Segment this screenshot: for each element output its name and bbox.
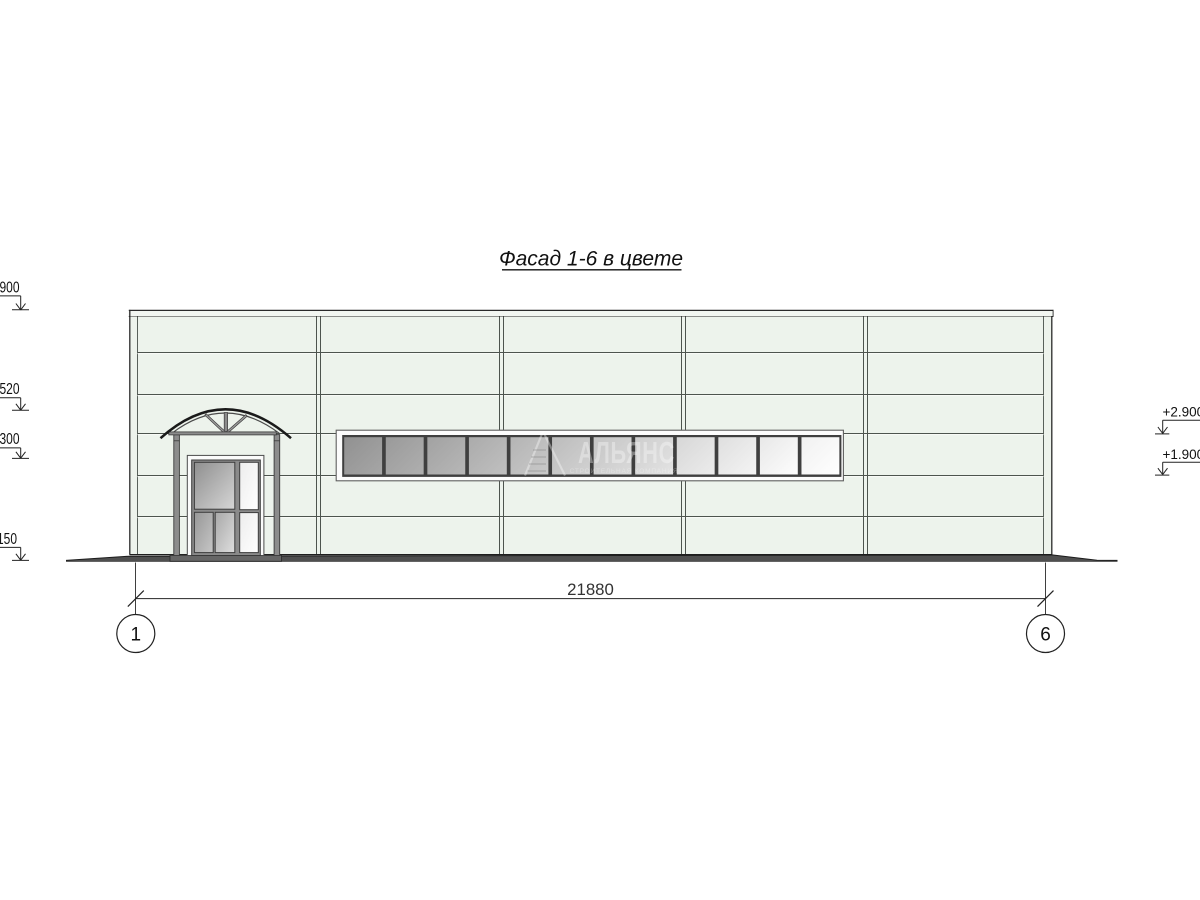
svg-text:+1.900: +1.900 [1163, 447, 1200, 462]
svg-text:21880: 21880 [567, 580, 614, 599]
svg-text:6: 6 [1040, 624, 1051, 645]
svg-text:АЛЬЯНС: АЛЬЯНС [578, 435, 675, 470]
svg-text:Фасад 1-6 в цвете: Фасад 1-6 в цвете [499, 248, 683, 271]
svg-text:СТРОИТЕЛЬНАЯ КОМПАНИЯ: СТРОИТЕЛЬНАЯ КОМПАНИЯ [570, 468, 679, 475]
svg-text:+4.300: +4.300 [0, 429, 20, 447]
svg-text:+2.900: +2.900 [1163, 404, 1200, 419]
svg-text:-0.150: -0.150 [0, 529, 17, 547]
svg-text:+6.900: +6.900 [0, 278, 20, 296]
svg-text:+5.520: +5.520 [0, 379, 20, 397]
svg-text:1: 1 [131, 624, 142, 645]
